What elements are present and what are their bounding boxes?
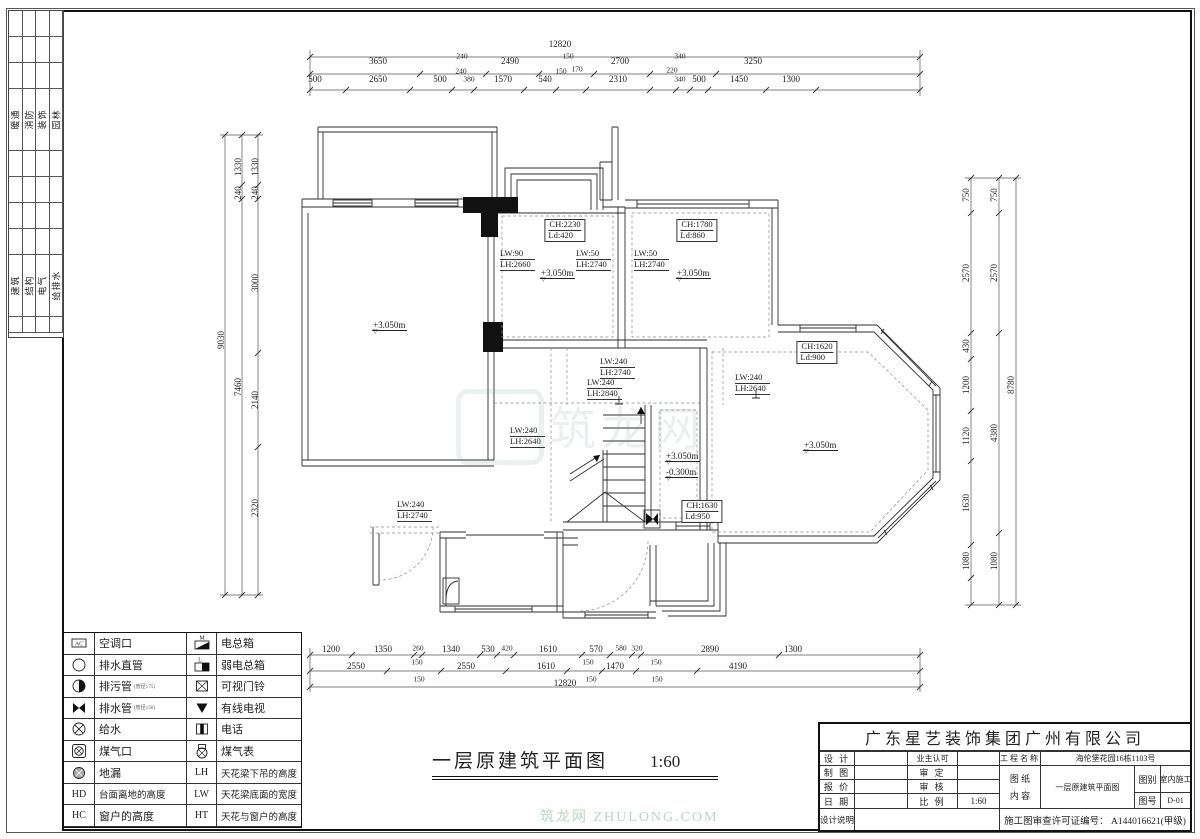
cell-type-value: 室内施工 xyxy=(1160,765,1190,792)
legend-symbol-phone-icon xyxy=(187,719,217,741)
strip-cell xyxy=(9,177,23,203)
legend-label: 排水直管 xyxy=(95,655,187,677)
strip-cell xyxy=(9,229,23,255)
strip-cell xyxy=(23,11,37,37)
strip-cell xyxy=(36,317,50,333)
strip-cell xyxy=(36,37,50,63)
strip-cell xyxy=(50,37,64,63)
legend-row: 给水电话 xyxy=(64,719,301,741)
legend-key-text: HT xyxy=(187,810,216,821)
strip-cell xyxy=(9,63,23,89)
strip-cell xyxy=(36,151,50,177)
cell-sheet-content-label: 图 纸 内 容 xyxy=(999,765,1040,808)
drawing-sheet: 筑龙网 筑龙网 ZHULONG.COM 暖通消防装饰园林建筑结构电气给排水 12… xyxy=(0,0,1200,839)
legend-row: 地漏LH天花梁下吊的高度 xyxy=(64,762,301,784)
cell-notes-value xyxy=(854,808,999,830)
dashed-lines xyxy=(370,213,928,611)
legend-label: 弱电总箱 xyxy=(217,655,301,677)
strip-cell xyxy=(23,37,37,63)
cell-design-value xyxy=(854,751,907,765)
plan-scale-text: 1:60 xyxy=(650,752,680,772)
strip-cell xyxy=(36,203,50,229)
legend-symbol-halfcircle-icon xyxy=(64,676,95,698)
legend-note: (管径≥50) xyxy=(134,704,155,711)
discipline-label: 装饰 xyxy=(36,109,49,129)
strip-cell xyxy=(36,177,50,203)
legend-label: 排水管(管径≥50) xyxy=(95,698,187,720)
cell-design: 设 计 xyxy=(820,751,854,765)
discipline-g1-0: 暖通 xyxy=(9,89,23,151)
cell-type-label: 图别 xyxy=(1134,765,1160,792)
strip-cell xyxy=(50,229,64,255)
legend-row: 排水管(管径≥50)有线电视 xyxy=(64,698,301,720)
strip-cell xyxy=(9,37,23,63)
cell-no-value: D-01 xyxy=(1160,792,1190,808)
discipline-label: 给排水 xyxy=(50,270,63,300)
dimension-lines xyxy=(220,50,1021,692)
cell-check: 审 核 xyxy=(907,779,957,793)
legend-key-LH: LH xyxy=(187,762,217,784)
sheet-label: 图 纸 xyxy=(1010,772,1030,785)
legend-label: 天花与窗户的高度 xyxy=(217,805,301,827)
solid-wall-fills xyxy=(463,197,658,525)
cell-quote: 报 价 xyxy=(820,779,854,793)
legend-label: 空调口 xyxy=(95,633,187,655)
legend-key-HT: HT xyxy=(187,805,217,827)
legend-key-text: LW xyxy=(187,789,216,800)
plan-title-text: 一层原建筑平面图 xyxy=(432,746,608,773)
cell-draft-value xyxy=(854,765,907,779)
legend-symbol-tv-icon xyxy=(187,698,217,720)
discipline-g2-0: 建筑 xyxy=(9,255,23,317)
legend-key-LW: LW xyxy=(187,784,217,806)
legend-label: 煤气口 xyxy=(95,741,187,763)
legend-symbol-lbox-icon: L xyxy=(187,655,217,677)
legend-label: 有线电视 xyxy=(217,698,301,720)
discipline-label: 暖通 xyxy=(9,109,22,129)
legend-table: AC空调口M电总箱排水直管L弱电总箱排污管(管径≥75)可视门铃排水管(管径≥5… xyxy=(63,632,302,828)
discipline-g2-3: 给排水 xyxy=(50,255,64,317)
strip-cell xyxy=(50,203,64,229)
cell-project-label: 工程名称 xyxy=(999,751,1040,765)
legend-row: HC窗户的高度HT天花与窗户的高度 xyxy=(64,805,301,827)
walls xyxy=(302,127,940,618)
legend-symbol-gasport-icon xyxy=(64,741,95,763)
legend-symbol-circle-icon xyxy=(64,655,95,677)
discipline-g1-2: 装饰 xyxy=(36,89,50,151)
title-block: 广东星艺装饰集团广州有限公司 设 计 业主认可 工程名称 海伦堡花园16栋110… xyxy=(818,722,1192,832)
cell-check-value xyxy=(957,779,999,793)
legend-symbol-drain-icon xyxy=(64,762,95,784)
legend-row: HD台面离地的高度LW天花梁底面的宽度 xyxy=(64,784,301,806)
discipline-g1-3: 园林 xyxy=(50,89,64,151)
strip-cell xyxy=(23,177,37,203)
cell-no-label: 图号 xyxy=(1134,792,1160,808)
cell-quote-value xyxy=(854,779,907,793)
strip-cell xyxy=(9,11,23,37)
legend-label: 煤气表 xyxy=(217,741,301,763)
strip-cell xyxy=(50,151,64,177)
legend-row: 排污管(管径≥75)可视门铃 xyxy=(64,676,301,698)
legend-key-HC: HC xyxy=(64,805,95,827)
strip-cell xyxy=(23,151,37,177)
legend-label: 台面离地的高度 xyxy=(95,784,187,806)
cell-project-name: 海伦堡花园16栋1103号 xyxy=(1040,751,1190,765)
legend-note: (管径≥75) xyxy=(134,683,155,690)
discipline-label: 结构 xyxy=(23,275,36,295)
discipline-label: 消防 xyxy=(23,109,36,129)
dimension-ticks xyxy=(222,54,1019,690)
legend-label: 地漏 xyxy=(95,762,187,784)
strip-cell xyxy=(36,229,50,255)
legend-key-text: LH xyxy=(187,767,216,778)
strip-cell xyxy=(50,317,64,333)
strip-cell xyxy=(9,203,23,229)
discipline-label: 电气 xyxy=(36,275,49,295)
cell-draft: 制 图 xyxy=(820,765,854,779)
plan-title: 一层原建筑平面图 1:60 xyxy=(432,746,722,780)
legend-key-text: HC xyxy=(64,810,94,821)
cell-approve-value xyxy=(957,765,999,779)
legend-label: 电总箱 xyxy=(217,633,301,655)
discipline-g1-1: 消防 xyxy=(23,89,37,151)
strip-cell xyxy=(9,151,23,177)
strip-cell xyxy=(50,177,64,203)
strip-cell xyxy=(23,229,37,255)
discipline-g2-2: 电气 xyxy=(36,255,50,317)
legend-label: 电话 xyxy=(217,719,301,741)
legend-symbol-doorbell-icon xyxy=(187,676,217,698)
cell-scale-label: 比 例 xyxy=(907,793,957,808)
discipline-signoff-strip: 暖通消防装饰园林建筑结构电气给排水 xyxy=(8,10,64,338)
strip-cell xyxy=(50,11,64,37)
company-name: 广东星艺装饰集团广州有限公司 xyxy=(820,724,1190,751)
legend-label: 给水 xyxy=(95,719,187,741)
legend-label: 可视门铃 xyxy=(217,676,301,698)
legend-symbol-xcircle-icon xyxy=(64,719,95,741)
legend-label: 天花梁底面的宽度 xyxy=(217,784,301,806)
cell-owner-ok: 业主认可 xyxy=(907,751,957,765)
strip-cell xyxy=(36,63,50,89)
svg-text:AC: AC xyxy=(75,642,83,648)
legend-key-HD: HD xyxy=(64,784,95,806)
plan-title-underline xyxy=(432,776,718,780)
tick-marks xyxy=(222,54,1019,690)
strip-cell xyxy=(23,317,37,333)
legend-row: 煤气口煤气表 xyxy=(64,741,301,763)
cell-owner-value xyxy=(957,751,999,765)
strip-cell xyxy=(36,11,50,37)
strip-cell xyxy=(23,203,37,229)
strip-cell xyxy=(23,63,37,89)
legend-label: 天花梁下吊的高度 xyxy=(217,762,301,784)
legend-symbol-ac-icon: AC xyxy=(64,633,95,655)
cell-date: 日 期 xyxy=(820,793,854,808)
cell-content-value: 一层原建筑平面图 xyxy=(1040,765,1134,808)
legend-row: 排水直管L弱电总箱 xyxy=(64,655,301,677)
cell-notes: 设计说明 xyxy=(820,808,854,830)
watermark-footer: 筑龙网 ZHULONG.COM xyxy=(540,806,719,826)
legend-symbol-mbox-icon: M xyxy=(187,633,217,655)
discipline-label: 园林 xyxy=(50,109,63,129)
legend-symbol-gasmeter-icon xyxy=(187,741,217,763)
legend-label: 排污管(管径≥75) xyxy=(95,676,187,698)
cell-scale-value: 1:60 xyxy=(957,793,999,808)
strip-cell xyxy=(50,63,64,89)
legend-key-text: HD xyxy=(64,789,94,800)
strip-cell xyxy=(9,317,23,333)
content-label: 内 容 xyxy=(1010,789,1030,802)
legend-symbol-bowtie-icon xyxy=(64,698,95,720)
discipline-g2-1: 结构 xyxy=(23,255,37,317)
cell-license: 施工图审查许可证编号： A144016621(甲级) xyxy=(999,808,1190,830)
legend-label: 窗户的高度 xyxy=(95,805,187,827)
legend-row: AC空调口M电总箱 xyxy=(64,633,301,655)
cell-date-value xyxy=(854,793,907,808)
cell-approve: 审 定 xyxy=(907,765,957,779)
discipline-label: 建筑 xyxy=(9,275,22,295)
